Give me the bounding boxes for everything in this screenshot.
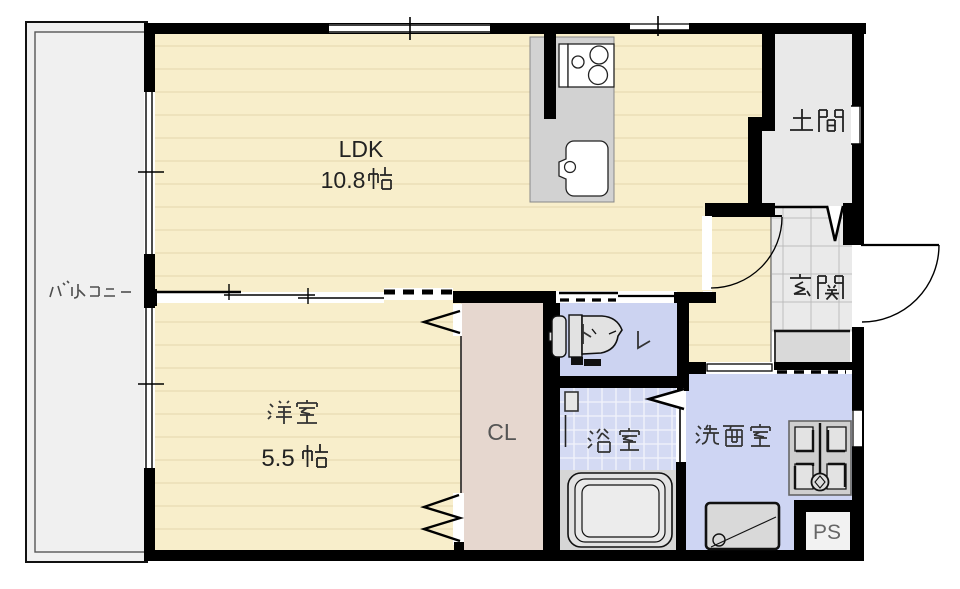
- svg-text:CL: CL: [487, 419, 517, 445]
- svg-text:5.5: 5.5: [261, 445, 294, 472]
- svg-text:PS: PS: [813, 521, 841, 544]
- svg-text:LDK: LDK: [339, 136, 384, 162]
- svg-text:10.8: 10.8: [321, 167, 366, 193]
